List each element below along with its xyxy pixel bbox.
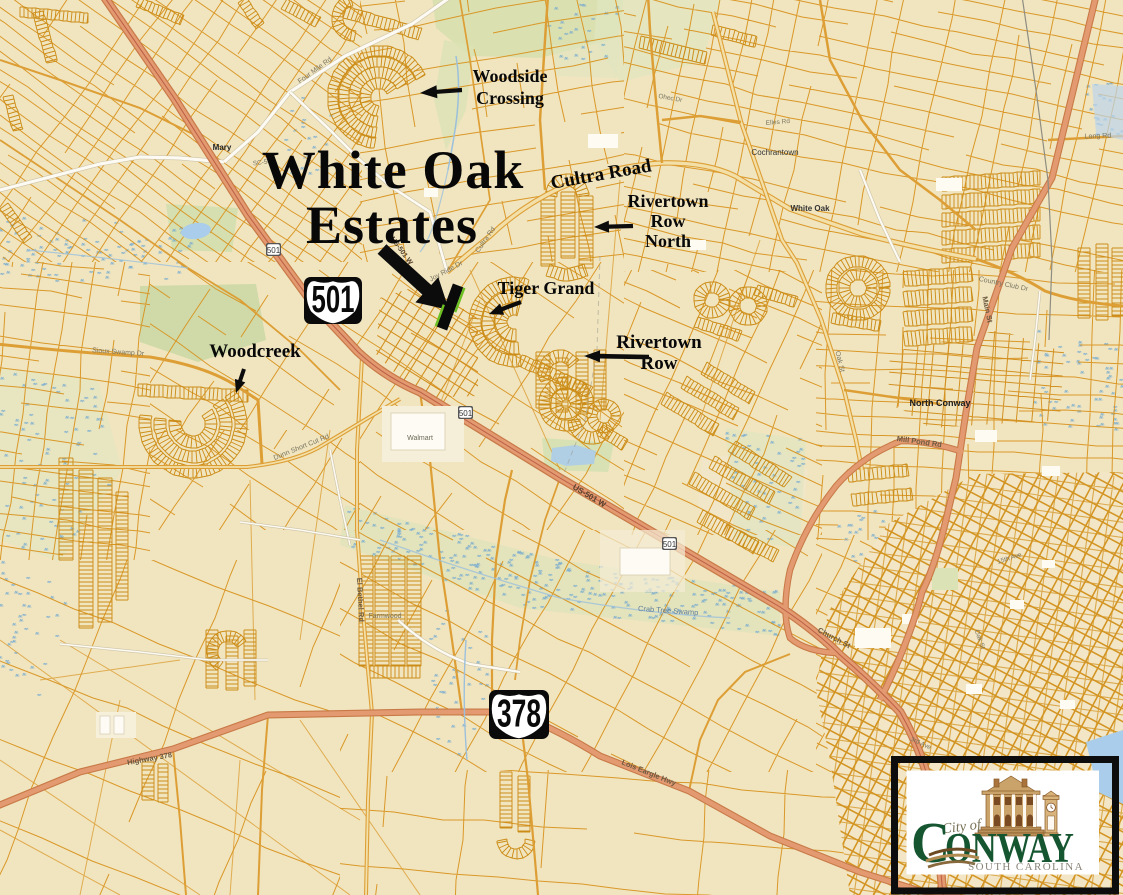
svg-text:501: 501 [459,409,473,418]
svg-text:378: 378 [497,693,541,736]
svg-text:Rivertown: Rivertown [628,191,709,211]
svg-text:White Oak: White Oak [262,140,525,200]
svg-text:Cochrantown: Cochrantown [751,148,798,157]
svg-text:Farmwood: Farmwood [368,613,401,620]
svg-text:Rivertown: Rivertown [616,332,702,353]
svg-text:Row: Row [651,211,686,231]
svg-text:Woodcreek: Woodcreek [209,341,301,362]
svg-text:Walmart: Walmart [407,435,433,442]
svg-text:Estates: Estates [306,195,478,255]
svg-text:Tiger Grand: Tiger Grand [498,278,595,298]
svg-text:North Conway: North Conway [909,398,970,408]
svg-text:Woodside: Woodside [472,66,547,86]
svg-text:501: 501 [267,246,281,255]
svg-text:White Oak: White Oak [790,204,830,213]
svg-text:501: 501 [312,279,355,321]
svg-text:Long Rd: Long Rd [1085,133,1112,141]
svg-text:North: North [645,231,691,251]
svg-text:Mary: Mary [213,143,232,152]
svg-text:501: 501 [663,540,677,549]
svg-text:Crossing: Crossing [476,88,544,108]
svg-text:SOUTH CAROLINA: SOUTH CAROLINA [968,861,1084,873]
